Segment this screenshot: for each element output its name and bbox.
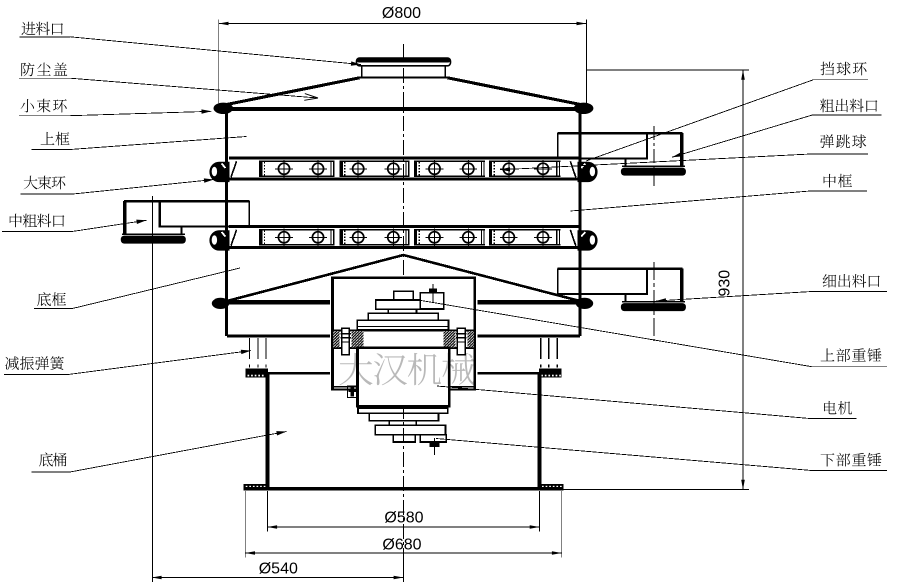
svg-text:Ø800: Ø800 [382, 5, 421, 22]
svg-text:930: 930 [717, 270, 734, 297]
svg-text:Ø680: Ø680 [382, 536, 421, 553]
svg-text:Ø580: Ø580 [384, 510, 423, 527]
svg-text:Ø540: Ø540 [259, 560, 298, 577]
